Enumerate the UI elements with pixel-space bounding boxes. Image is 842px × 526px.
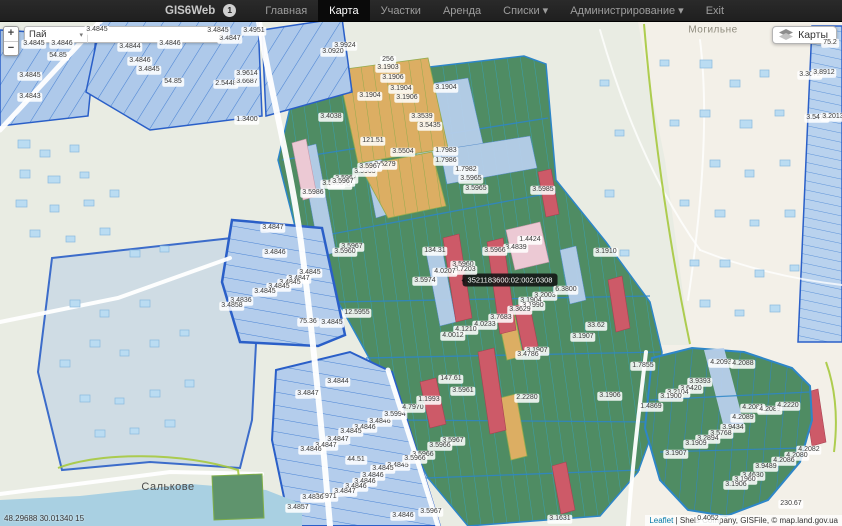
nav-item-lease[interactable]: Аренда [432,0,492,21]
notification-badge: 1 [223,4,236,17]
zoom-control: + − [3,26,19,56]
search-type-value: Пай [29,29,46,40]
search-bar: Пай ▾ [24,26,222,43]
app-brand: GIS6Web1 [0,0,236,21]
attribution-text: | Shels Company, GISFile, © map.land.gov… [673,516,838,525]
layers-label: Карты [798,29,828,41]
search-input[interactable] [88,26,222,43]
navbar-menu: ГлавнаяКартаУчасткиАрендаСписки ▾Админис… [254,0,735,21]
park [212,474,264,520]
nav-item-home[interactable]: Главная [254,0,318,21]
navbar: GIS6Web1 ГлавнаяКартаУчасткиАрендаСписки… [0,0,842,22]
nav-item-exit[interactable]: Exit [695,0,735,21]
nav-item-lists[interactable]: Списки ▾ [492,0,559,21]
attribution-link[interactable]: Leaflet [649,516,673,525]
map-area[interactable]: + − Пай ▾ Карты 48.29688 30.01340 15 Lea… [0,22,842,526]
zoom-in-button[interactable]: + [4,27,18,41]
nav-item-map[interactable]: Карта [318,0,369,21]
layers-icon [779,29,793,41]
chevron-down-icon: ▾ [79,31,83,39]
nav-item-parcels[interactable]: Участки [370,0,432,21]
zoom-out-button[interactable]: − [4,41,18,55]
map-canvas[interactable] [0,22,842,526]
attribution: Leaflet | Shels Company, GISFile, © map.… [645,515,842,526]
coords-display: 48.29688 30.01340 15 [4,514,84,523]
nav-item-admin[interactable]: Администрирование ▾ [559,0,694,21]
search-type-select[interactable]: Пай ▾ [24,26,88,43]
layers-control[interactable]: Карты [772,26,837,44]
